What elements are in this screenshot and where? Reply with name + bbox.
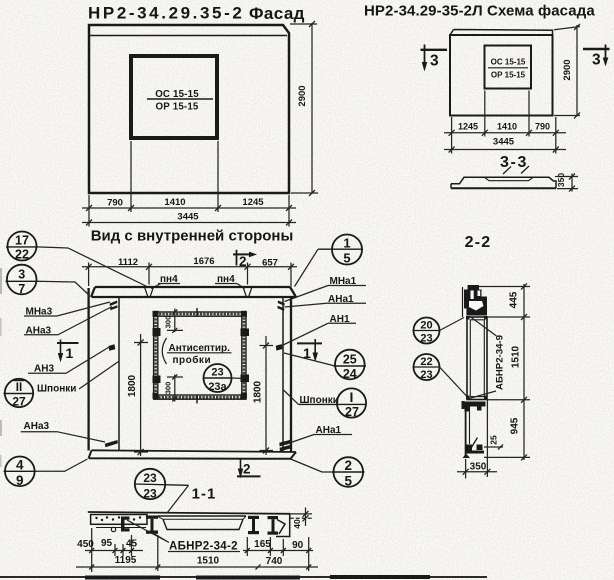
- svg-text:7: 7: [18, 282, 25, 296]
- svg-text:ОС 15-15: ОС 15-15: [491, 58, 526, 67]
- svg-text:3-3: 3-3: [500, 154, 528, 171]
- svg-text:пробки: пробки: [173, 354, 212, 366]
- svg-text:1510: 1510: [511, 345, 522, 368]
- svg-text:3: 3: [430, 53, 439, 70]
- svg-text:1245: 1245: [242, 197, 264, 208]
- svg-text:40: 40: [292, 519, 302, 529]
- svg-text:ОР 15-15: ОР 15-15: [155, 102, 198, 113]
- svg-text:3: 3: [18, 268, 25, 282]
- svg-text:95: 95: [101, 538, 113, 549]
- svg-text:657: 657: [262, 258, 278, 269]
- svg-text:Вид с внутренней стороны: Вид с внутренней стороны: [91, 228, 294, 245]
- svg-text:790: 790: [107, 198, 123, 209]
- svg-text:300: 300: [164, 382, 173, 395]
- svg-text:1410: 1410: [164, 197, 185, 208]
- svg-text:23: 23: [420, 333, 432, 345]
- svg-text:2: 2: [345, 458, 353, 473]
- svg-text:165: 165: [254, 539, 271, 550]
- svg-text:1800: 1800: [127, 374, 138, 397]
- svg-text:1676: 1676: [193, 256, 214, 267]
- svg-text:АНа3: АНа3: [24, 421, 50, 432]
- svg-text:АБНР2-34-9: АБНР2-34-9: [495, 335, 506, 390]
- svg-text:НР2-34.29.35-2: НР2-34.29.35-2: [88, 4, 244, 23]
- svg-text:27: 27: [345, 405, 359, 419]
- svg-text:27: 27: [12, 395, 26, 409]
- svg-text:1800: 1800: [253, 380, 264, 403]
- svg-text:3445: 3445: [493, 137, 515, 148]
- svg-text:3: 3: [592, 52, 601, 69]
- svg-text:23: 23: [211, 367, 223, 379]
- svg-text:740: 740: [266, 556, 283, 567]
- svg-text:II: II: [16, 382, 22, 394]
- svg-text:22: 22: [420, 356, 432, 368]
- svg-text:25: 25: [343, 353, 357, 367]
- svg-text:НР2-34.29-35-2Л Схема фасада: НР2-34.29-35-2Л Схема фасада: [364, 3, 595, 20]
- svg-text:Фасад: Фасад: [249, 4, 305, 23]
- svg-text:I: I: [350, 389, 354, 405]
- svg-text:300: 300: [164, 316, 173, 329]
- svg-text:450: 450: [77, 539, 94, 550]
- svg-text:2: 2: [239, 254, 247, 269]
- svg-text:23: 23: [143, 471, 157, 485]
- svg-text:5: 5: [345, 474, 353, 489]
- svg-text:1: 1: [343, 236, 350, 251]
- svg-text:1-1: 1-1: [192, 486, 217, 503]
- svg-text:790: 790: [535, 122, 550, 132]
- svg-text:25: 25: [489, 435, 499, 445]
- svg-text:350: 350: [556, 173, 566, 187]
- svg-text:17: 17: [15, 234, 29, 248]
- svg-text:350: 350: [470, 462, 487, 473]
- svg-text:Шпонки: Шпонки: [37, 384, 76, 395]
- svg-text:1510: 1510: [197, 556, 220, 567]
- svg-text:2: 2: [243, 462, 251, 477]
- svg-text:90: 90: [292, 540, 304, 551]
- svg-text:5: 5: [343, 251, 350, 266]
- svg-text:23: 23: [143, 487, 157, 501]
- svg-text:3445: 3445: [177, 212, 199, 223]
- svg-text:23: 23: [420, 369, 432, 381]
- svg-text:22: 22: [15, 248, 29, 262]
- svg-text:1410: 1410: [497, 122, 517, 132]
- svg-text:1: 1: [66, 345, 74, 361]
- svg-text:1245: 1245: [458, 122, 478, 132]
- svg-text:24: 24: [343, 367, 357, 381]
- svg-text:2-2: 2-2: [465, 234, 492, 251]
- svg-text:1195: 1195: [115, 555, 137, 566]
- svg-text:9: 9: [16, 473, 24, 488]
- svg-text:4: 4: [16, 458, 24, 473]
- svg-text:ОР 15-15: ОР 15-15: [491, 71, 526, 80]
- svg-text:945: 945: [510, 417, 521, 434]
- svg-text:20: 20: [420, 320, 432, 332]
- svg-text:445: 445: [509, 291, 520, 308]
- svg-text:Шпонки: Шпонки: [300, 395, 339, 406]
- svg-text:23а: 23а: [208, 381, 227, 393]
- svg-text:45: 45: [126, 539, 138, 550]
- svg-text:2900: 2900: [297, 85, 308, 106]
- svg-text:2900: 2900: [562, 59, 573, 80]
- svg-text:1112: 1112: [118, 257, 138, 268]
- svg-text:АБНР2-34-2: АБНР2-34-2: [169, 541, 238, 553]
